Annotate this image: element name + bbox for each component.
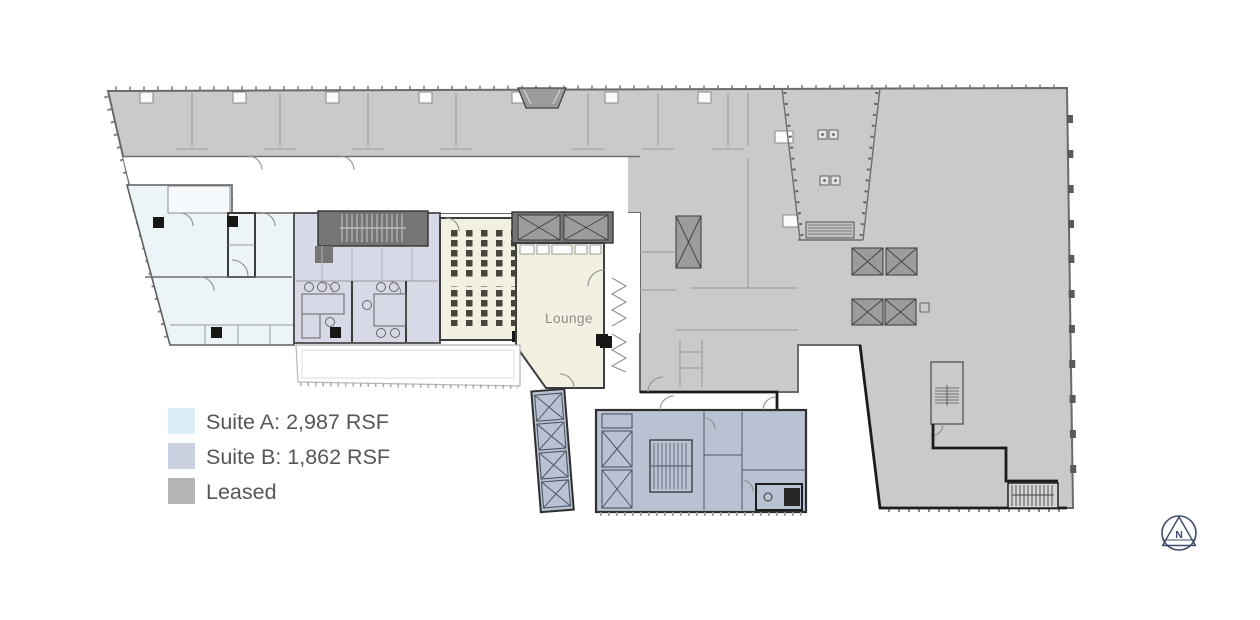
legend-swatch-suite-b <box>168 443 195 469</box>
training-room <box>440 218 523 342</box>
lounge-region: Lounge <box>512 212 613 388</box>
column <box>153 217 164 228</box>
entry-notch <box>518 88 566 108</box>
column <box>227 216 238 227</box>
terrace <box>296 345 520 387</box>
chair-grid <box>451 230 521 277</box>
lounge-label: Lounge <box>545 311 593 326</box>
north-compass: N <box>1162 516 1196 550</box>
elevator-bank <box>531 389 573 512</box>
core-region <box>596 396 806 514</box>
zigzag-partition <box>612 334 626 372</box>
legend-label-suite-b: Suite B: 1,862 RSF <box>206 445 390 469</box>
legend-swatch-leased <box>168 478 195 504</box>
column <box>330 327 341 338</box>
suite-b-region <box>294 211 440 343</box>
legend-label-leased: Leased <box>206 480 277 504</box>
legend-label-suite-a: Suite A: 2,987 RSF <box>206 410 389 434</box>
floor-plan: Lounge <box>0 0 1260 620</box>
legend-swatch-suite-a <box>168 408 195 434</box>
north-label: N <box>1175 529 1183 541</box>
column <box>211 327 222 338</box>
column <box>600 336 612 348</box>
floor-plan-page: Lounge <box>0 0 1260 620</box>
legend: Suite A: 2,987 RSF Suite B: 1,862 RSF Le… <box>168 408 390 504</box>
chair-grid <box>451 286 521 326</box>
